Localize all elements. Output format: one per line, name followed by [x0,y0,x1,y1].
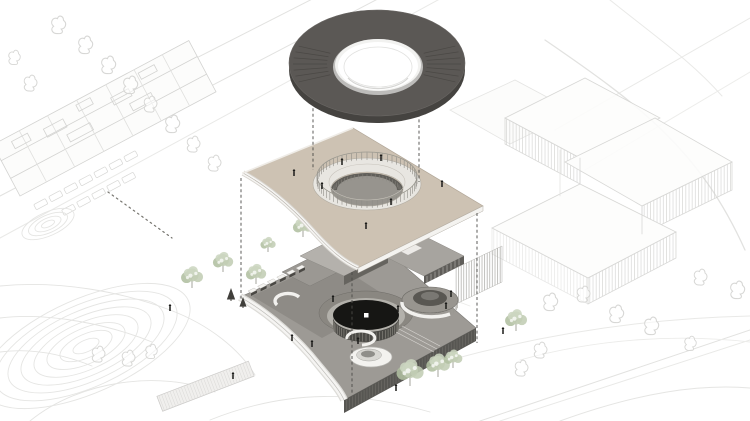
rotunda-skylight [364,313,369,318]
parked-car [94,167,108,178]
person-figure [395,384,397,391]
context-tree-outline-icon [146,344,157,358]
slatted-fence [456,246,502,304]
roof-canopy-torus [289,10,465,123]
context-tree-outline-icon [208,155,221,171]
scene-canvas [0,0,750,421]
context-tree-outline-icon [102,56,116,74]
context-tree-outline-icon [9,50,20,64]
context-tree-outline-icon [166,115,180,133]
tree [505,309,527,331]
parked-car [122,172,136,183]
tree [213,252,233,272]
exploded-axon-diagram [0,0,750,421]
context-tree-outline-icon [610,305,624,323]
context-tree-outline-icon [122,350,135,366]
context-tree-outline-icon [52,16,66,34]
torus-oculus [344,47,412,87]
context-tree-outline-icon [187,136,200,152]
context-hedge-dotted [108,192,172,238]
context-tree-outline-icon [534,342,547,358]
parked-car [64,183,78,194]
concentric-paving-arcs [0,202,207,421]
parked-car [77,196,91,207]
context-tree-outline-icon [694,269,707,285]
context-tree-outline-icon [515,360,528,376]
tree [181,266,203,288]
parked-car [124,151,138,162]
parked-car [109,159,123,170]
parked-car [92,188,106,199]
context-tree-outline-icon [645,317,659,335]
context-tree-outline-icon [544,293,558,311]
context-tree-outline-icon [92,346,105,362]
pedestrian-bridge [157,361,254,411]
context-tree-outline-icon [731,281,745,299]
context-tree-outline-icon [24,75,37,91]
spiral-drum [402,287,458,319]
parked-car [107,180,121,191]
parked-car [79,175,93,186]
parked-car [49,191,63,202]
parked-car [34,199,48,210]
paving-arc [10,291,162,402]
person-figure [502,327,504,334]
tree [260,237,275,252]
tree [246,264,266,284]
context-tree-outline-icon [79,36,93,54]
pine-tree [227,288,235,301]
left-context-building [0,41,234,230]
